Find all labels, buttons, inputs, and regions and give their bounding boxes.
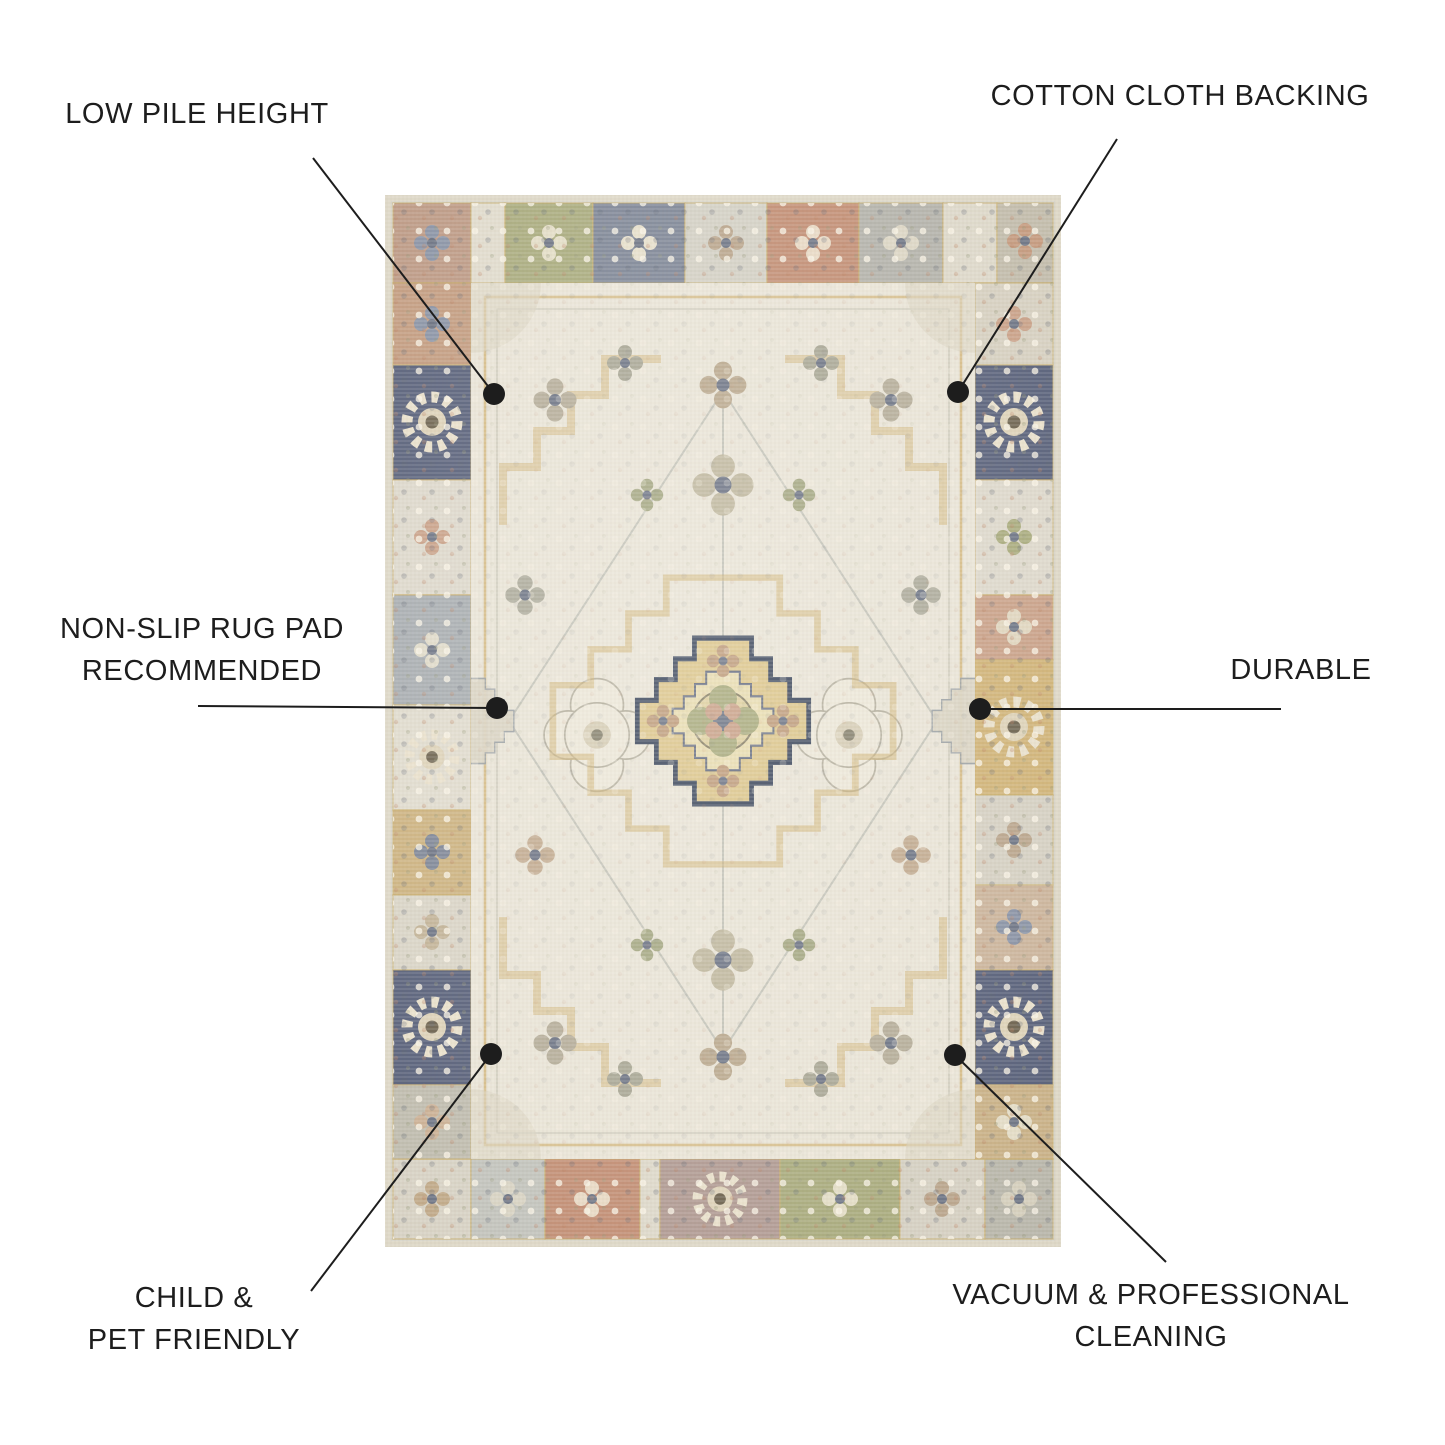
rug-fade-wash xyxy=(385,195,1061,1247)
callout-label-vacuum-professional-cleaning: VACUUM & PROFESSIONAL CLEANING xyxy=(952,1274,1349,1358)
callout-label-cotton-cloth-backing: COTTON CLOTH BACKING xyxy=(991,75,1370,117)
callout-label-durable: DURABLE xyxy=(1230,649,1371,691)
callout-label-line: CLEANING xyxy=(952,1316,1349,1358)
callout-label-line: VACUUM & PROFESSIONAL xyxy=(952,1274,1349,1316)
callout-label-non-slip-rug-pad-recommended: NON-SLIP RUG PAD RECOMMENDED xyxy=(60,608,344,692)
callout-label-line: DURABLE xyxy=(1230,649,1371,691)
callout-label-low-pile-height: LOW PILE HEIGHT xyxy=(65,93,329,135)
callout-label-line: CHILD & xyxy=(88,1277,300,1319)
product-infographic-canvas: LOW PILE HEIGHT COTTON CLOTH BACKING NON… xyxy=(0,0,1445,1445)
callout-label-line: NON-SLIP RUG PAD xyxy=(60,608,344,650)
callout-label-line: RECOMMENDED xyxy=(60,650,344,692)
callout-label-line: LOW PILE HEIGHT xyxy=(65,93,329,135)
rug-image xyxy=(385,195,1061,1247)
callout-label-child-pet-friendly: CHILD & PET FRIENDLY xyxy=(88,1277,300,1361)
callout-label-line: PET FRIENDLY xyxy=(88,1319,300,1361)
callout-label-line: COTTON CLOTH BACKING xyxy=(991,75,1370,117)
